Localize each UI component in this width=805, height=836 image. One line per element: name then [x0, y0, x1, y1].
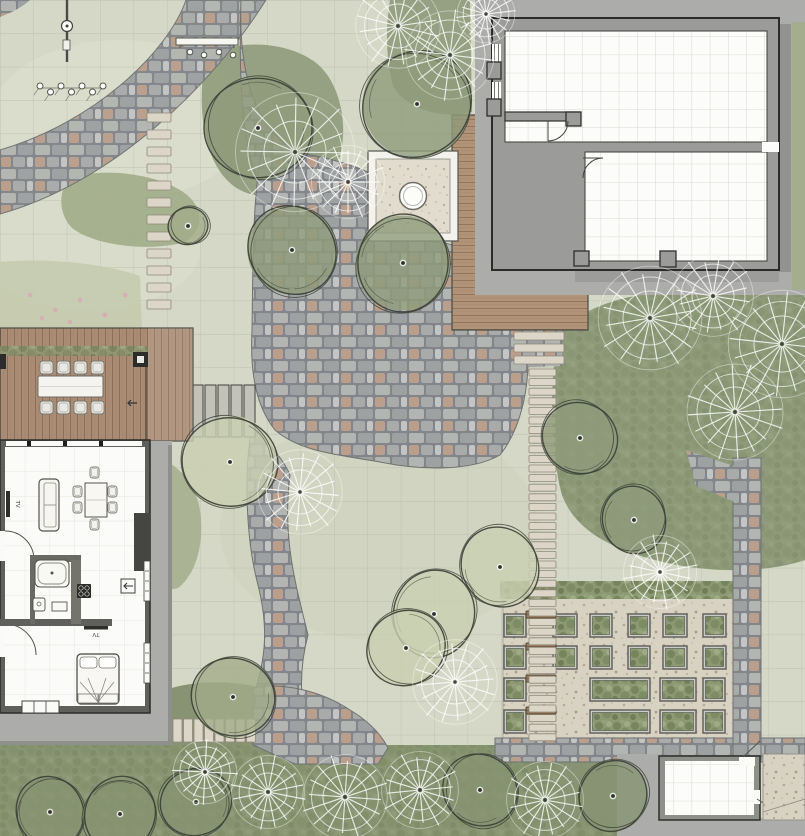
- planter-planting: [706, 649, 724, 667]
- stepping-stone: [529, 734, 556, 741]
- planter-planting: [556, 649, 575, 667]
- trunk-dot: [648, 316, 651, 319]
- garden-room-floor: [665, 761, 754, 815]
- planter-planting: [593, 617, 610, 635]
- site-plan-canvas: TV TV: [0, 0, 805, 836]
- trunk-dot: [448, 53, 451, 56]
- tree-canopy-radial: [312, 146, 385, 219]
- trunk-dot: [48, 810, 52, 814]
- stepping-stone: [529, 475, 556, 482]
- stepping-stone: [529, 484, 556, 491]
- flower-dot: [68, 320, 73, 325]
- planting-strip: [792, 22, 805, 290]
- column: [660, 251, 676, 267]
- flower-dot: [103, 313, 108, 318]
- stepping-stone: [147, 164, 171, 173]
- flower-bed: [0, 261, 142, 330]
- stepping-stone: [529, 398, 556, 405]
- flower-dot: [28, 293, 33, 298]
- stepping-stone: [529, 494, 556, 501]
- tv-label: TV: [92, 631, 99, 637]
- planter-planting: [631, 649, 648, 667]
- pergola-post: [0, 354, 6, 369]
- trunk-dot: [231, 695, 235, 699]
- house: TV TV: [0, 440, 172, 745]
- stepping-stone: [529, 369, 556, 376]
- tv-label: TV: [14, 500, 20, 507]
- building-shadow: [779, 24, 791, 272]
- stepping-stone: [147, 249, 171, 258]
- stepping-stone: [529, 667, 556, 674]
- trunk-dot: [401, 261, 405, 265]
- trunk-dot: [396, 24, 399, 27]
- garden-bench: [176, 38, 238, 45]
- apron-edge: [0, 741, 172, 745]
- planter-planting: [663, 713, 694, 731]
- pole-lamp-center: [66, 25, 69, 28]
- stepping-stone: [529, 715, 556, 722]
- sink: [52, 602, 67, 611]
- planter-planting: [706, 617, 724, 635]
- bath-wall: [30, 560, 35, 624]
- trunk-dot: [658, 570, 661, 573]
- stepping-stone: [529, 724, 556, 731]
- plant-marker: [230, 52, 236, 58]
- door-gap: [754, 790, 760, 804]
- planter-planting: [507, 681, 524, 699]
- stepping-stone: [529, 532, 556, 539]
- stepping-stone: [529, 379, 556, 386]
- trunk-dot: [498, 565, 502, 569]
- trunk-dot: [578, 436, 582, 440]
- trunk-dot: [733, 410, 736, 413]
- stepping-stone: [529, 638, 556, 645]
- planter-planting: [593, 681, 648, 699]
- planter-planting: [666, 617, 685, 635]
- stepping-stone: [184, 719, 193, 742]
- tv-unit: [84, 626, 108, 630]
- planter-planting: [663, 681, 694, 699]
- door-gap: [0, 531, 5, 561]
- trunk-dot: [611, 794, 615, 798]
- trunk-dot: [632, 518, 636, 522]
- stove: [77, 584, 91, 598]
- planter-planting: [706, 713, 723, 731]
- room-south: [585, 152, 767, 261]
- flower-dot: [40, 316, 45, 321]
- stepping-stone: [529, 513, 556, 520]
- trunk-dot: [453, 680, 456, 683]
- trunk-dot: [543, 798, 546, 801]
- stepping-stone: [147, 232, 171, 241]
- stepping-stone: [147, 283, 171, 292]
- interior-wall: [0, 619, 112, 626]
- pillow: [80, 657, 97, 668]
- trunk-dot: [228, 460, 232, 464]
- stepping-stone: [529, 628, 556, 635]
- trunk-dot: [266, 790, 269, 793]
- stepping-stone: [147, 266, 171, 275]
- pole-base: [63, 40, 70, 50]
- site-plan: TV TV: [0, 0, 805, 836]
- planter-planting: [556, 617, 575, 635]
- stepping-stone: [147, 300, 171, 309]
- column: [574, 251, 589, 266]
- bathtub-drain: [51, 572, 54, 575]
- stepping-stone: [147, 113, 171, 122]
- trunk-dot: [343, 795, 346, 798]
- trunk-dot: [346, 180, 349, 183]
- trunk-dot: [404, 646, 408, 650]
- plant-marker: [48, 89, 54, 95]
- cobble-path-east: [733, 458, 761, 760]
- planter-planting: [631, 617, 648, 635]
- plant-marker: [69, 89, 75, 95]
- door-gap: [739, 757, 755, 766]
- deck-planting-strip: [0, 346, 148, 356]
- trunk-dot: [484, 12, 487, 15]
- plant-marker: [216, 49, 222, 55]
- window-seat: [22, 701, 59, 713]
- stepping-stone: [529, 465, 556, 472]
- planter-planting: [507, 713, 524, 731]
- plant-marker: [37, 83, 43, 89]
- tv-unit: [6, 491, 10, 517]
- stepping-stone: [173, 719, 182, 742]
- stepping-stone: [529, 503, 556, 510]
- flower-dot: [53, 308, 58, 313]
- stepping-stone: [529, 657, 556, 664]
- plant-marker: [58, 83, 64, 89]
- trunk-dot: [203, 770, 206, 773]
- plant-marker: [201, 52, 207, 58]
- mullion: [27, 441, 31, 446]
- stepping-stone: [147, 198, 171, 207]
- window-gap: [492, 82, 501, 100]
- mullion: [99, 441, 103, 446]
- stepping-stone: [514, 344, 564, 352]
- stepping-stone: [529, 609, 556, 616]
- stepping-stone: [514, 356, 564, 364]
- trunk-dot: [256, 126, 260, 130]
- building-studio: [475, 0, 805, 295]
- stepping-stone: [147, 147, 171, 156]
- plant-marker: [187, 49, 193, 55]
- planter-planting: [593, 713, 648, 731]
- trunk-dot: [415, 102, 419, 106]
- stepping-stone: [529, 695, 556, 702]
- stepping-stone: [529, 523, 556, 530]
- door-gap: [0, 625, 5, 657]
- trunk-dot: [186, 224, 190, 228]
- planter-planting: [507, 649, 524, 667]
- mullion: [63, 441, 67, 446]
- plant-marker: [79, 83, 85, 89]
- window-band: [6, 441, 142, 446]
- stepping-stone: [529, 686, 556, 693]
- trunk-dot: [298, 490, 301, 493]
- pillow: [99, 657, 116, 668]
- planter-planting: [706, 681, 723, 699]
- apron-edge: [168, 445, 172, 745]
- trunk-dot: [478, 788, 482, 792]
- wall-pier: [487, 99, 501, 116]
- planter-planting: [666, 649, 685, 667]
- plant-marker: [90, 89, 96, 95]
- trunk-dot: [118, 812, 122, 816]
- stepping-stone: [529, 619, 556, 626]
- planter-planting: [507, 617, 524, 635]
- trunk-dot: [290, 248, 294, 252]
- stepping-stone: [529, 388, 556, 395]
- deck-section: [148, 328, 193, 441]
- trunk-dot: [418, 788, 421, 791]
- stepping-stone: [147, 215, 171, 224]
- pergola-post-cap: [137, 356, 144, 363]
- trunk-dot: [711, 294, 714, 297]
- door-gap: [762, 142, 779, 152]
- flower-dot: [78, 298, 83, 303]
- stepping-stone: [529, 599, 556, 606]
- stepping-stone: [529, 676, 556, 683]
- stepping-stone: [529, 647, 556, 654]
- stepping-stone: [529, 705, 556, 712]
- stepping-stone: [147, 130, 171, 139]
- flower-dot: [123, 293, 128, 298]
- toilet: [33, 598, 45, 611]
- trunk-dot: [780, 342, 783, 345]
- stepping-stone: [514, 332, 564, 340]
- trunk-dot: [293, 150, 296, 153]
- trunk-dot: [432, 612, 436, 616]
- plant-marker: [100, 83, 106, 89]
- planter-planting: [593, 649, 610, 667]
- concrete-apron: [0, 711, 172, 745]
- stepping-stone: [147, 181, 171, 190]
- room-north: [505, 31, 767, 142]
